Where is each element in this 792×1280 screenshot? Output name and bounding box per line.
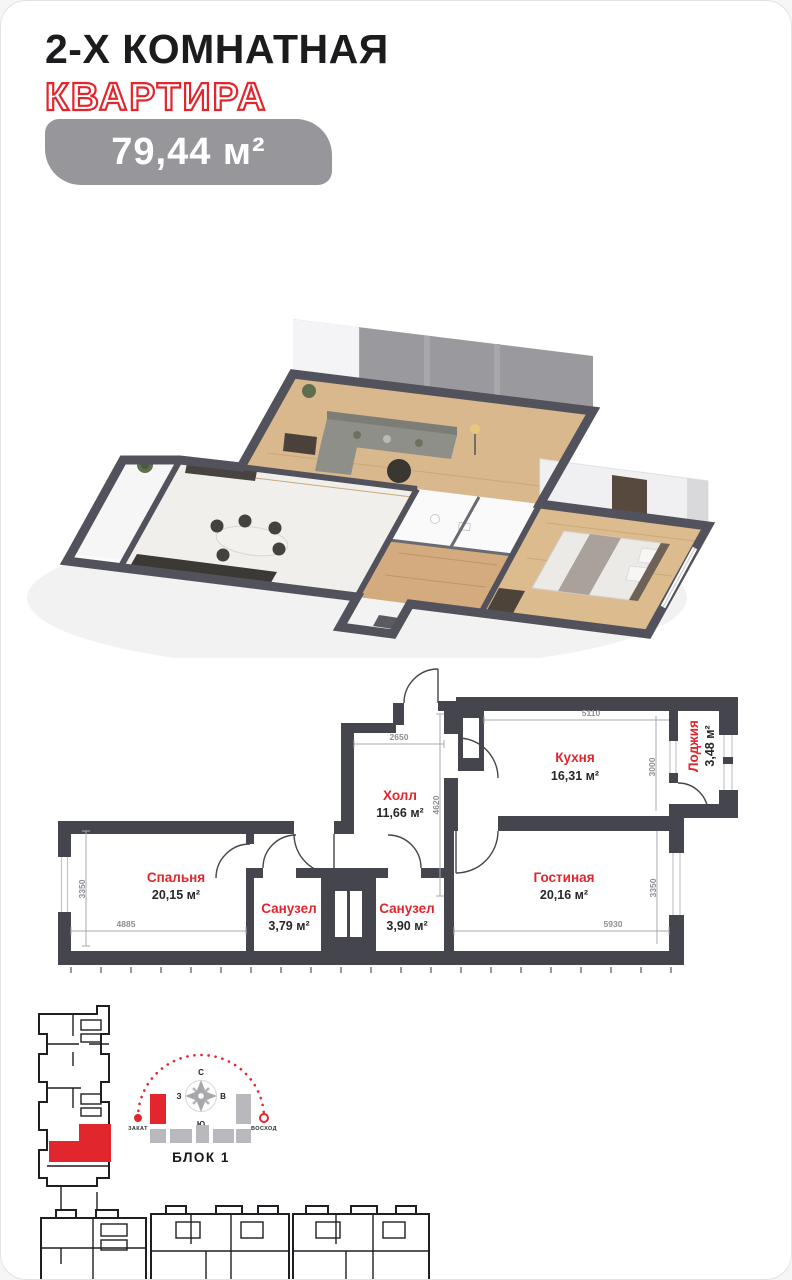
building-section-plan: [39, 1006, 111, 1196]
site-plan: ЗАКАТ ВОСХОД С Ю З В БЛОК 1: [1, 996, 792, 1280]
total-area-badge: 79,44 м²: [45, 119, 332, 185]
dim-hall-height: 4620: [431, 795, 441, 814]
sunrise-icon: [260, 1114, 268, 1122]
brochure-card: 2-Х КОМНАТНАЯ КВАРТИРА 79,44 м²: [0, 0, 792, 1280]
sunrise-label: ВОСХОД: [251, 1126, 277, 1132]
dim-kitchen-height: 3000: [647, 757, 657, 776]
floor-plan-2d: 2650 4620 5110 3000 3350 4885 5930 3350 …: [1, 661, 792, 981]
compass-north: С: [198, 1068, 204, 1077]
room-living-name: Гостиная: [533, 870, 594, 885]
render-curtain: [687, 478, 708, 526]
dim-bedroom-width: 4885: [117, 919, 136, 929]
block-label: БЛОК 1: [172, 1150, 230, 1165]
lower-building-plans: [41, 1192, 429, 1280]
dim-kitchen-width: 5110: [582, 708, 601, 718]
room-bath1-name: Санузел: [261, 901, 317, 916]
header: 2-Х КОМНАТНАЯ КВАРТИРА: [45, 29, 389, 117]
dim-living-height: 3350: [648, 878, 658, 897]
render-sofa-chaise: [315, 443, 357, 475]
page-title-line2: КВАРТИРА: [45, 78, 389, 117]
compass-east: В: [220, 1092, 226, 1101]
dim-living-width: 5930: [604, 919, 623, 929]
sunset-icon: [134, 1114, 142, 1122]
render-floor-lamp: [470, 424, 480, 434]
room-loggia-name: Лоджия: [686, 720, 701, 772]
block-highlighted: [150, 1094, 166, 1124]
dim-hall-width: 2650: [390, 732, 409, 742]
plan-ruler-ticks: [71, 967, 671, 973]
room-bath1-area: 3,79 м²: [268, 919, 309, 933]
room-bath2-name: Санузел: [379, 901, 435, 916]
sunset-label: ЗАКАТ: [128, 1126, 148, 1132]
dim-bedroom-height: 3350: [77, 879, 87, 898]
render-coffee-table: [387, 459, 411, 483]
room-living-area: 20,16 м²: [540, 888, 588, 902]
room-bedroom-name: Спальня: [147, 870, 205, 885]
room-hall-area: 11,66 м²: [376, 806, 423, 820]
room-bath2-area: 3,90 м²: [386, 919, 427, 933]
room-kitchen-name: Кухня: [555, 750, 594, 765]
room-hall-name: Холл: [383, 788, 417, 803]
compass-west: З: [176, 1092, 181, 1101]
room-loggia-area: 3,48 м²: [703, 725, 717, 766]
apartment-3d-render: [27, 223, 767, 658]
room-bedroom-area: 20,15 м²: [152, 888, 200, 902]
total-area-value: 79,44 м²: [111, 131, 265, 174]
page-title-line1: 2-Х КОМНАТНАЯ: [45, 29, 389, 70]
compass-icon: С Ю З В: [176, 1068, 226, 1129]
room-kitchen-area: 16,31 м²: [551, 769, 599, 783]
render-plant-2: [302, 384, 316, 398]
